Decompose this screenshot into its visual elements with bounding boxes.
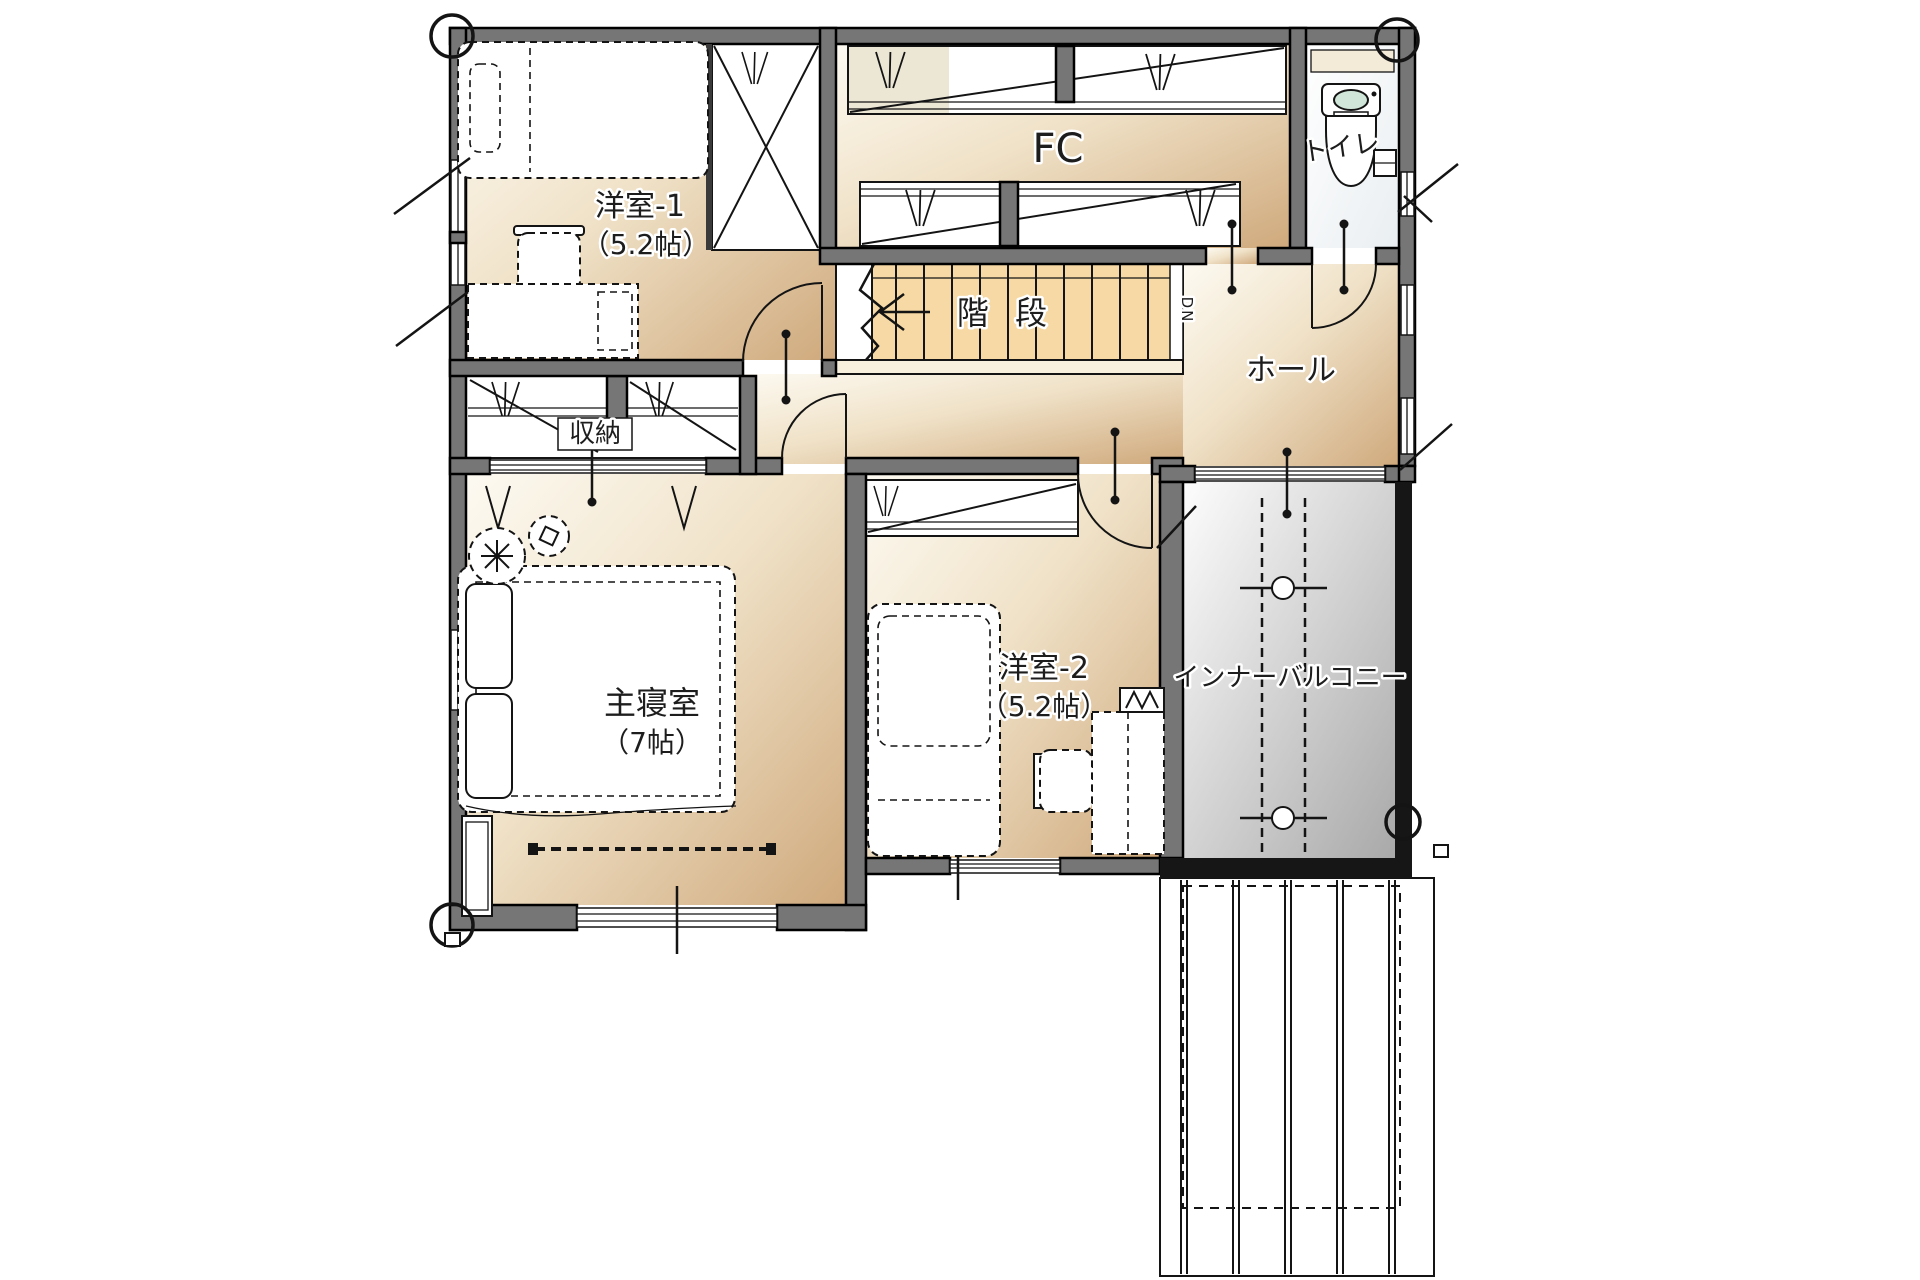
label-hall: ホール xyxy=(1246,353,1336,388)
closet-fc-north xyxy=(848,46,1286,114)
closet-western2 xyxy=(866,480,1078,536)
opening-storage-sliding xyxy=(490,460,706,473)
closet-western1 xyxy=(712,44,820,250)
chair-western1 xyxy=(514,226,584,291)
roof-area xyxy=(1160,878,1434,1276)
stair-rail xyxy=(836,360,1183,374)
bed-western1 xyxy=(458,42,708,178)
floor-plan-drawing: 洋室-1 （5.2帖） FC トイレ 階 段 DN ホール 収納 主寝室 （7帖… xyxy=(0,0,1920,1280)
window-balcony-north xyxy=(1195,467,1385,481)
bed-western2 xyxy=(868,604,1000,856)
label-fc: FC xyxy=(1033,126,1084,172)
label-stairs-dn: DN xyxy=(1178,297,1196,324)
closet-fc-south xyxy=(860,182,1240,246)
toilet-lid xyxy=(1334,90,1368,110)
label-balcony: インナーバルコニー xyxy=(1173,663,1406,693)
chair-western2 xyxy=(1034,750,1092,812)
label-stairs: 階 段 xyxy=(957,294,1055,332)
label-master: 主寝室 xyxy=(604,684,700,722)
label-western2: 洋室-2 xyxy=(999,651,1089,686)
floor-corridor xyxy=(740,374,1183,464)
window-western1-west xyxy=(450,160,466,285)
desk-western1 xyxy=(468,284,638,358)
label-storage: 収納 xyxy=(569,419,621,449)
window-hall-east-1 xyxy=(1401,285,1414,335)
floor-plan-page: 洋室-1 （5.2帖） FC トイレ 階 段 DN ホール 収納 主寝室 （7帖… xyxy=(0,0,1920,1280)
label-master-size: （7帖） xyxy=(601,726,703,759)
window-hall-east-2 xyxy=(1401,398,1414,454)
label-western1-size: （5.2帖） xyxy=(582,228,711,261)
desk-western2 xyxy=(1092,712,1164,854)
label-western1: 洋室-1 xyxy=(595,189,685,224)
balcony-south-wall xyxy=(1160,858,1412,878)
label-western2-size: （5.2帖） xyxy=(980,690,1109,723)
hanger-box-western2 xyxy=(1120,688,1164,712)
